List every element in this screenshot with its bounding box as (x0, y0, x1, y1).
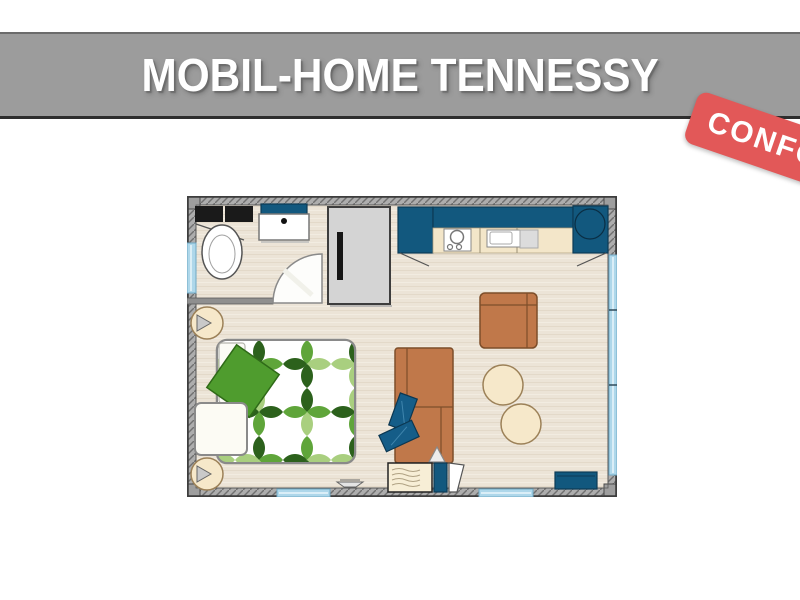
armchair (480, 293, 537, 348)
floorplan (187, 196, 617, 497)
tv-bench (555, 472, 597, 489)
bedside-table (195, 403, 247, 455)
entry-console (388, 463, 432, 492)
corner-unit (573, 206, 608, 253)
bathroom-counter (225, 206, 253, 222)
wardrobe (328, 207, 392, 306)
washbasin-drain (281, 218, 287, 224)
kitchen-upper-cabinets (433, 207, 573, 228)
pouf (501, 404, 541, 444)
washbasin (259, 214, 309, 240)
sink-basin (490, 232, 512, 244)
toilet (202, 225, 242, 279)
entry-panel (434, 463, 447, 492)
title-banner: MOBIL-HOME TENNESSY (0, 32, 800, 119)
pouf (483, 365, 523, 405)
bathroom-counter (195, 206, 223, 222)
sink-drainer (520, 230, 538, 248)
slide: { "header": { "title": "MOBIL-HOME TENNE… (0, 0, 800, 600)
bathroom-wall (187, 298, 273, 304)
kitchen-tall-cabinet (398, 207, 433, 253)
wardrobe-handle (337, 232, 343, 280)
floorplan-svg (187, 196, 617, 497)
page-title: MOBIL-HOME TENNESSY (141, 48, 658, 102)
